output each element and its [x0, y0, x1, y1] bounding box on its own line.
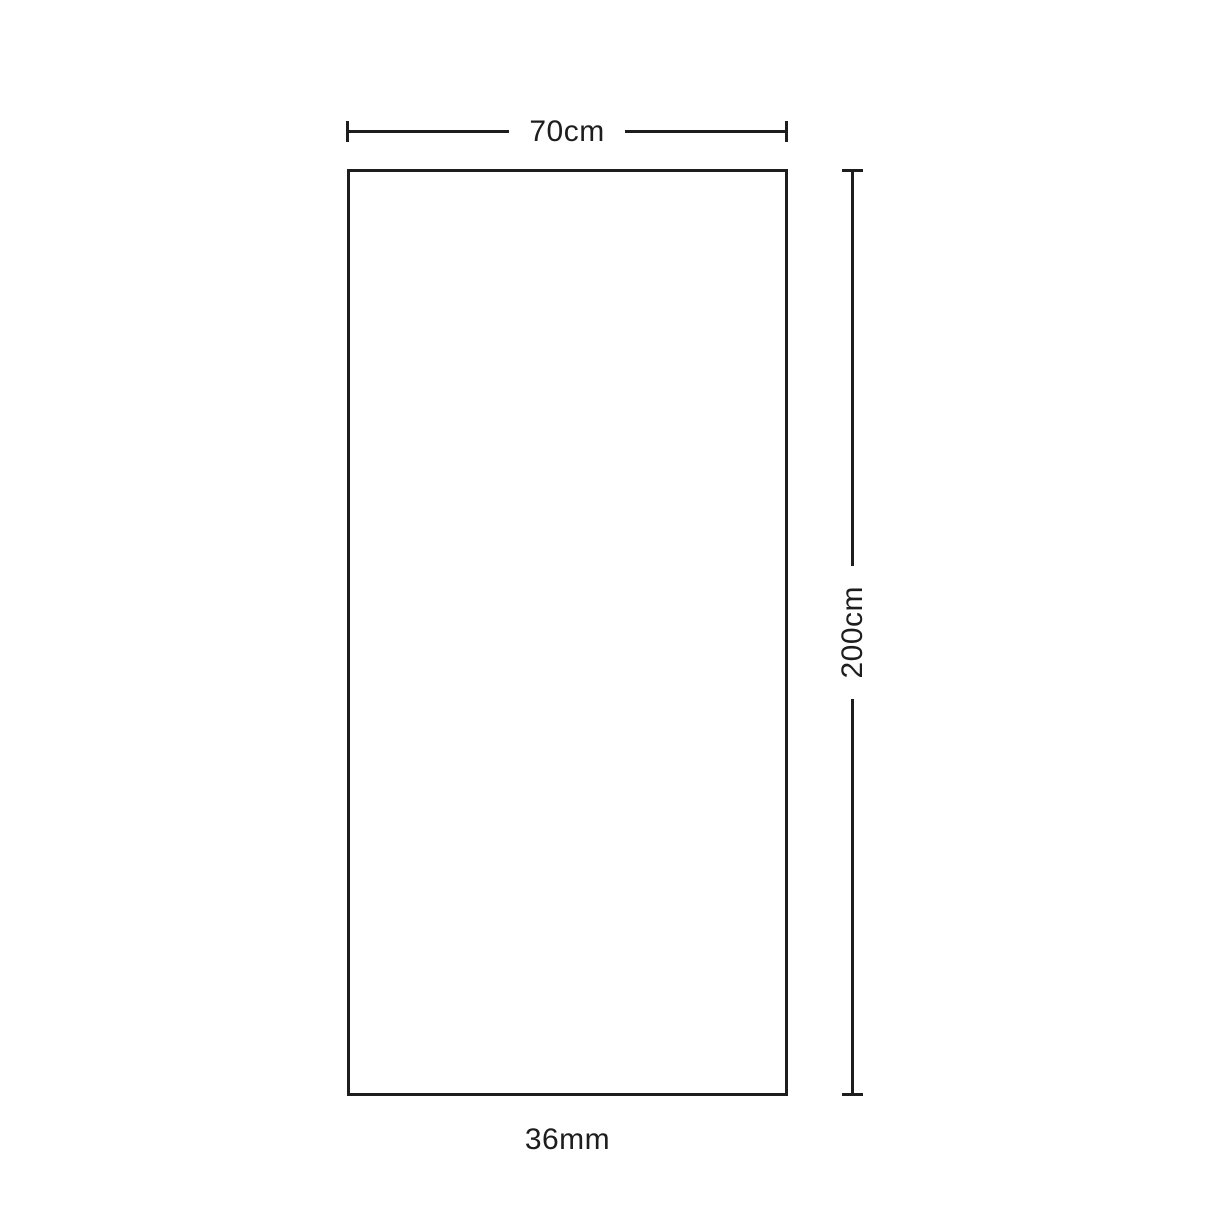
height-dimension-line: 200cm — [842, 169, 863, 1096]
dimension-line-segment — [851, 699, 854, 1093]
width-dimension-line: 70cm — [346, 121, 788, 142]
dimension-line-segment — [349, 130, 509, 133]
width-label: 70cm — [509, 117, 624, 147]
dimension-tick-right — [785, 121, 788, 142]
product-outline-rectangle — [347, 169, 788, 1096]
height-label: 200cm — [838, 566, 868, 699]
dimension-diagram: 70cm 200cm 36mm — [0, 0, 1214, 1214]
dimension-line-segment — [625, 130, 785, 133]
thickness-label: 36mm — [347, 1125, 788, 1155]
dimension-tick-bottom — [842, 1093, 863, 1096]
dimension-line-segment — [851, 172, 854, 566]
